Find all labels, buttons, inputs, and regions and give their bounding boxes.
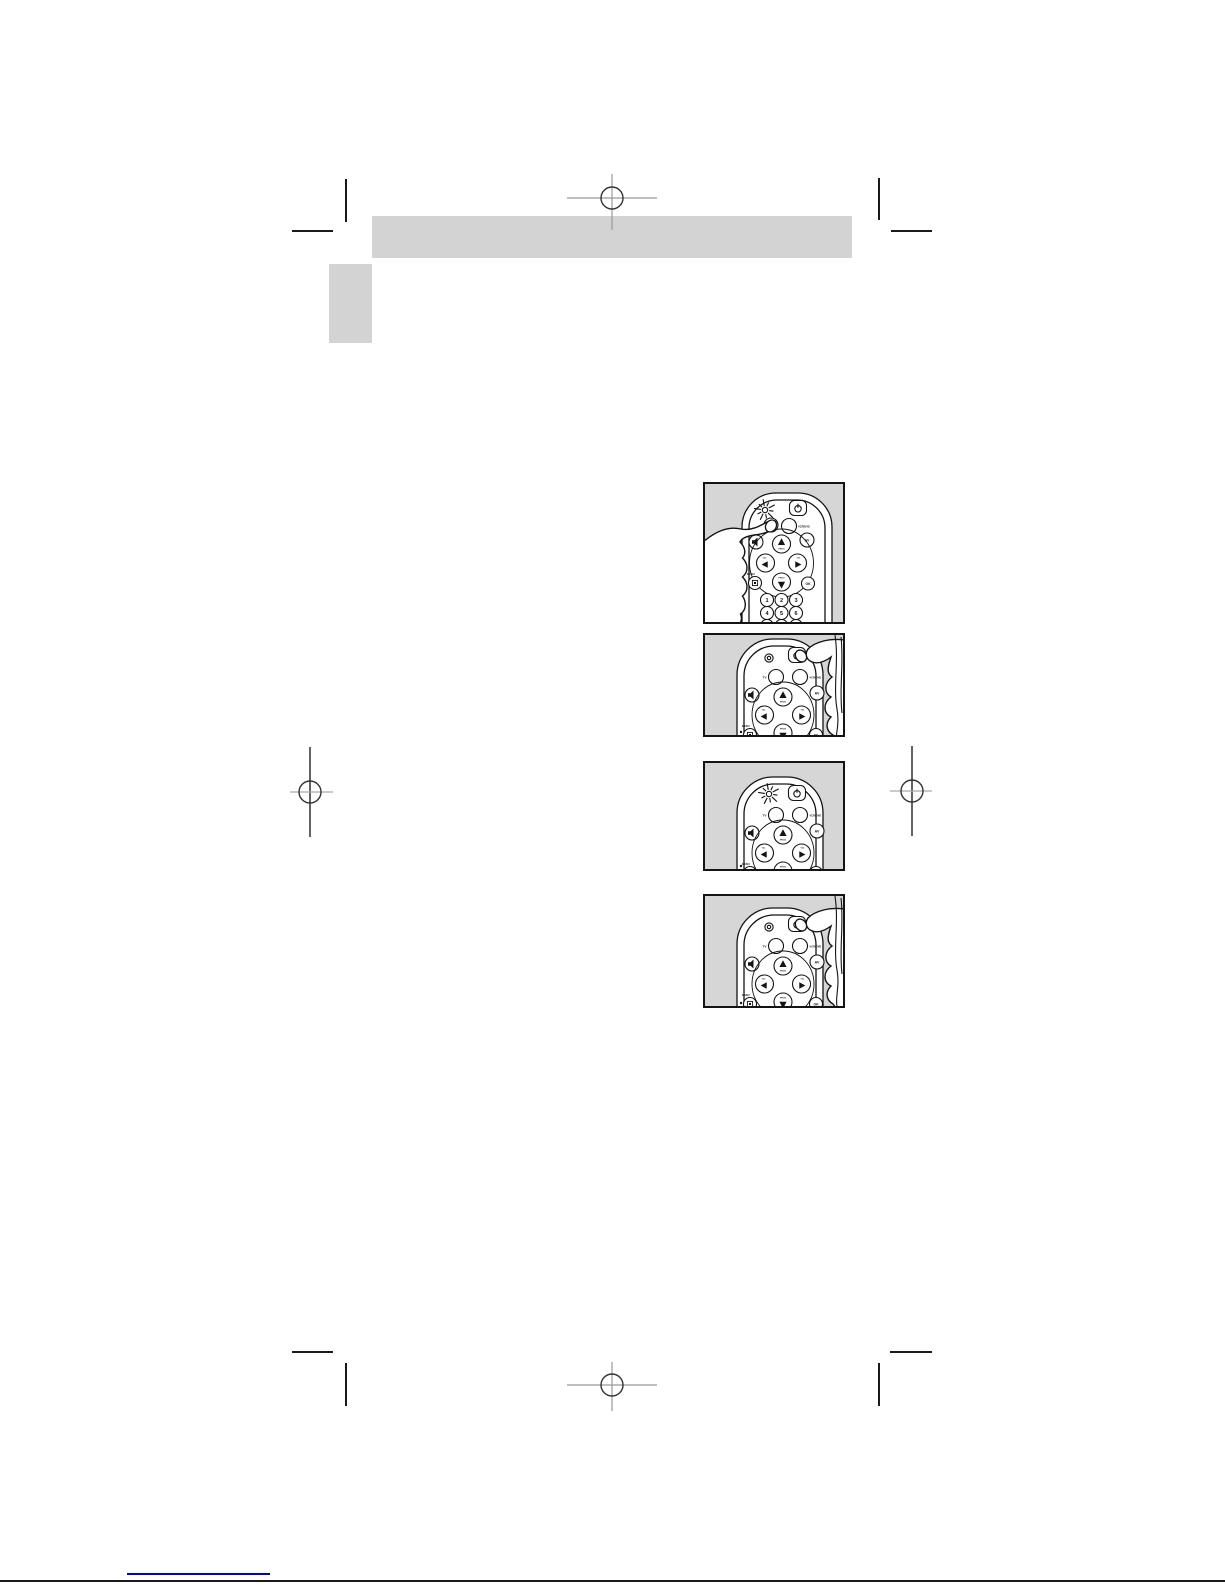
sidebar-tab	[329, 264, 372, 343]
registration-mark-top-center	[562, 168, 662, 232]
remote-illustration-2: TVVCR/DVDAVPROGVOLVOLPROGMENUOK	[705, 635, 843, 735]
svg-text:VCR/DVD: VCR/DVD	[810, 813, 822, 817]
page-bottom-rule	[0, 1580, 1225, 1582]
svg-text:VCR/DVD: VCR/DVD	[810, 675, 822, 679]
svg-text:VCR/DVD: VCR/DVD	[810, 944, 822, 948]
svg-text:PROG: PROG	[780, 867, 787, 869]
svg-text:PROG: PROG	[780, 840, 787, 842]
registration-mark-middle-left	[265, 745, 357, 839]
footer-link-underline[interactable]	[127, 1573, 270, 1575]
svg-text:TV: TV	[763, 675, 767, 679]
svg-text:TV: TV	[763, 813, 767, 817]
svg-text:PROG: PROG	[778, 578, 785, 580]
power-button-icon	[789, 786, 806, 801]
led-indicator-icon	[765, 923, 773, 931]
svg-text:MENU: MENU	[742, 862, 750, 866]
svg-text:MENU: MENU	[742, 993, 750, 997]
figure-step-2: TVVCR/DVDAVPROGVOLVOLPROGMENUOK	[703, 633, 845, 737]
figure-step-4: TVVCR/DVDAVPROGVOLVOLPROGMENUOK	[703, 894, 845, 1008]
power-button-icon	[790, 501, 807, 516]
crop-mark-top-left-vertical	[345, 179, 347, 222]
svg-text:PROG: PROG	[780, 998, 787, 1000]
remote-drawing: TVVCR/DVDAVPROGVOLVOLPROGMENUOK	[737, 777, 824, 869]
svg-text:AV: AV	[815, 691, 820, 695]
registration-mark-bottom-center	[562, 1355, 662, 1419]
digit-keys: 123456789	[761, 594, 803, 623]
crop-mark-top-right-horizontal	[891, 230, 932, 232]
crop-mark-top-left-horizontal	[292, 230, 333, 232]
svg-text:PROG: PROG	[778, 549, 785, 551]
crop-mark-bottom-right-horizontal	[890, 1351, 932, 1353]
svg-text:AV: AV	[815, 829, 820, 833]
svg-text:3: 3	[794, 598, 797, 604]
svg-text:AV: AV	[815, 960, 820, 964]
crop-mark-top-right-vertical	[878, 178, 880, 220]
svg-text:1: 1	[765, 598, 768, 604]
svg-text:OK: OK	[813, 1002, 819, 1006]
svg-text:5: 5	[780, 611, 783, 617]
remote-illustration-1: VCR/DVDAVPROGVOLVOLPROGMENUOK123456789	[705, 484, 843, 622]
remote-drawing: TVVCR/DVDAVPROGVOLVOLPROGMENUOK	[737, 896, 843, 1006]
svg-text:PROG: PROG	[780, 729, 787, 731]
figure-step-1: VCR/DVDAVPROGVOLVOLPROGMENUOK123456789	[703, 482, 845, 624]
remote-illustration-4: TVVCR/DVDAVPROGVOLVOLPROGMENUOK	[705, 896, 843, 1006]
svg-text:PROG: PROG	[780, 702, 787, 704]
remote-illustration-3: TVVCR/DVDAVPROGVOLVOLPROGMENUOK	[705, 763, 843, 869]
svg-text:6: 6	[794, 611, 797, 617]
svg-text:MENU: MENU	[742, 724, 750, 728]
manual-page: VCR/DVDAVPROGVOLVOLPROGMENUOK123456789 T…	[0, 0, 1225, 1585]
svg-text:PROG: PROG	[780, 971, 787, 973]
led-indicator-icon	[765, 654, 773, 662]
remote-drawing: VCR/DVDAVPROGVOLVOLPROGMENUOK123456789	[705, 493, 832, 622]
svg-text:VCR/DVD: VCR/DVD	[798, 524, 810, 528]
svg-text:OK: OK	[813, 733, 819, 735]
figure-step-3: TVVCR/DVDAVPROGVOLVOLPROGMENUOK	[703, 761, 845, 871]
registration-mark-middle-right	[867, 744, 959, 838]
crop-mark-bottom-right-vertical	[878, 1363, 880, 1406]
svg-text:MENU: MENU	[747, 572, 755, 576]
svg-text:TV: TV	[763, 944, 767, 948]
svg-text:OK: OK	[805, 582, 811, 586]
crop-mark-bottom-left-horizontal	[292, 1351, 333, 1353]
svg-text:2: 2	[780, 598, 783, 604]
remote-drawing: TVVCR/DVDAVPROGVOLVOLPROGMENUOK	[737, 635, 843, 735]
crop-mark-bottom-left-vertical	[345, 1363, 347, 1406]
